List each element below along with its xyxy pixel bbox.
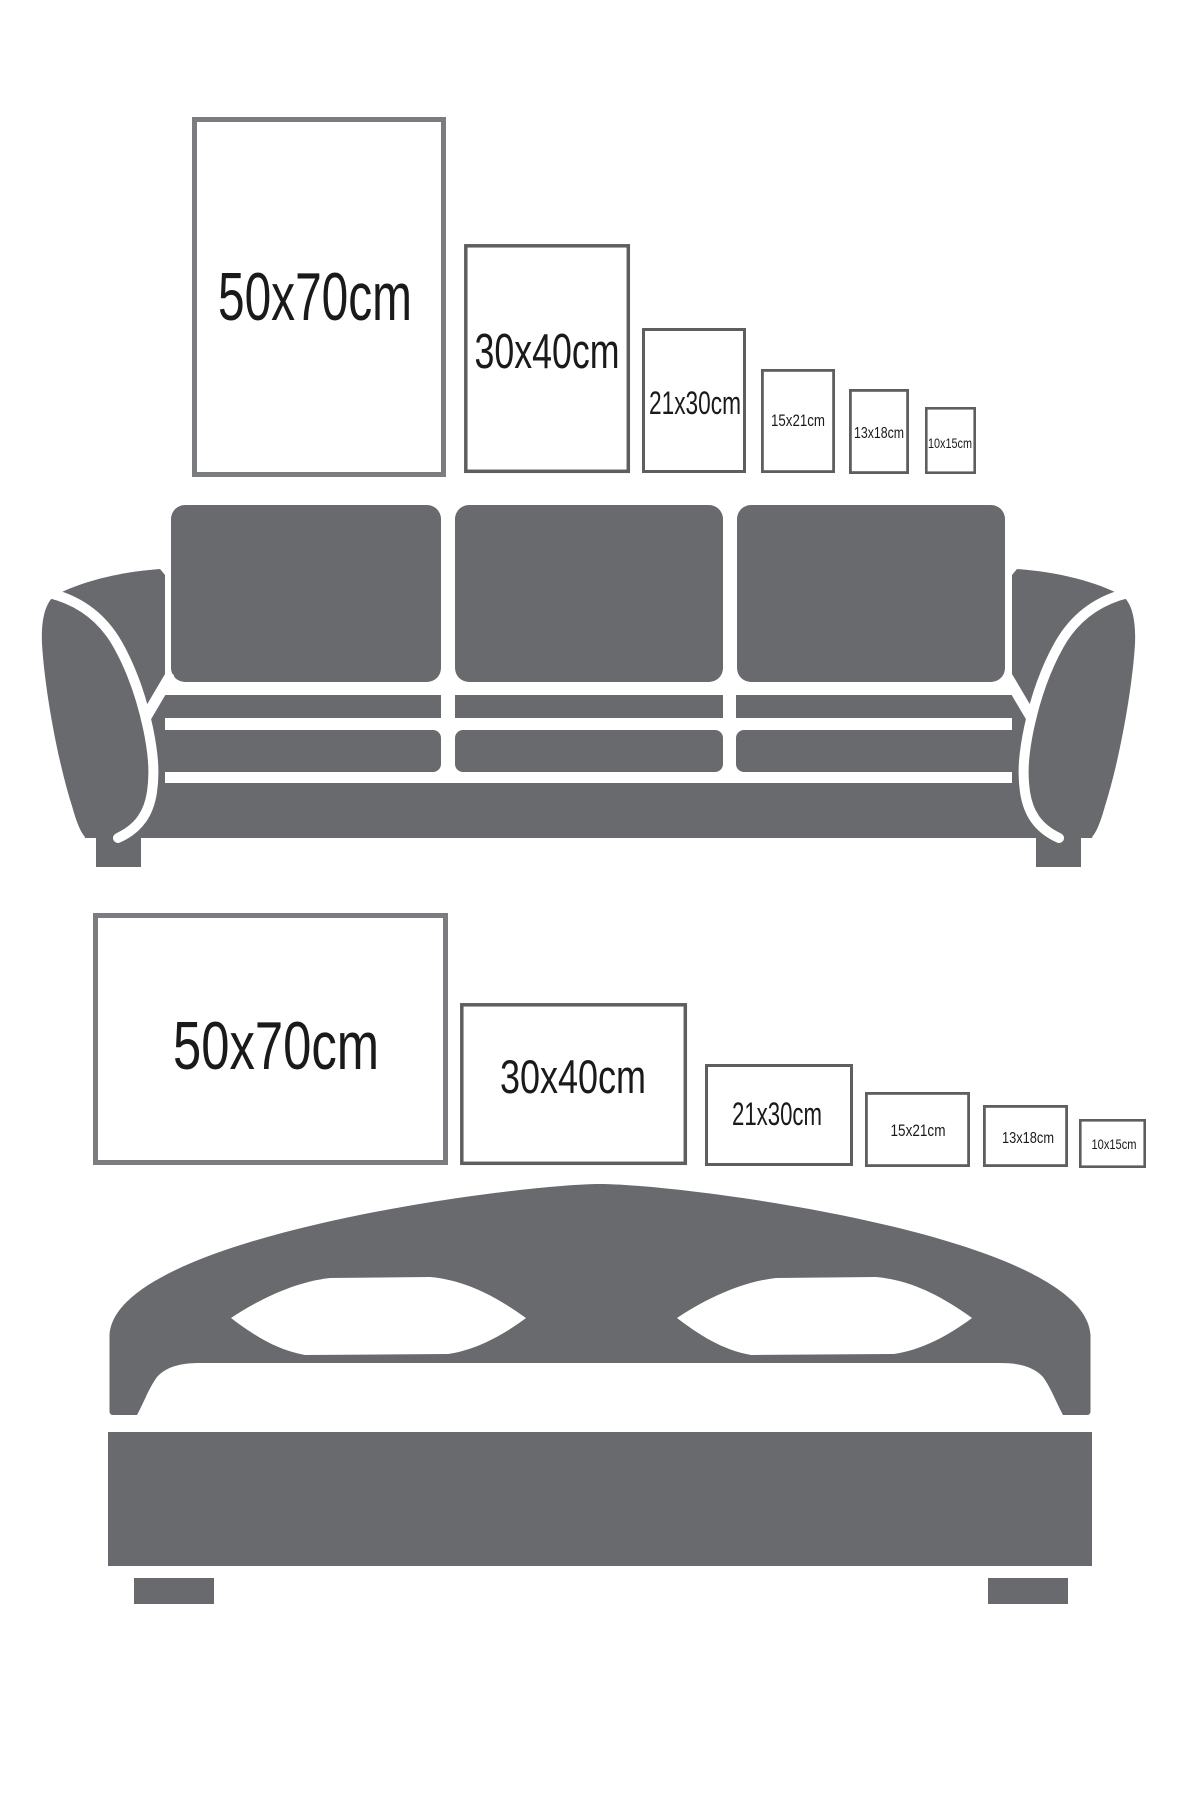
svg-text:13x18cm: 13x18cm (1002, 1130, 1054, 1147)
svg-text:15x21cm: 15x21cm (891, 1121, 946, 1140)
svg-text:30x40cm: 30x40cm (475, 325, 620, 379)
svg-text:10x15cm: 10x15cm (1092, 1136, 1137, 1152)
svg-text:21x30cm: 21x30cm (732, 1096, 822, 1132)
svg-text:50x70cm: 50x70cm (218, 259, 412, 335)
svg-text:13x18cm: 13x18cm (854, 425, 904, 442)
svg-text:21x30cm: 21x30cm (649, 385, 741, 421)
svg-text:10x15cm: 10x15cm (928, 435, 972, 451)
svg-text:50x70cm: 50x70cm (173, 1008, 379, 1084)
svg-text:15x21cm: 15x21cm (771, 411, 825, 430)
svg-text:30x40cm: 30x40cm (500, 1050, 646, 1103)
